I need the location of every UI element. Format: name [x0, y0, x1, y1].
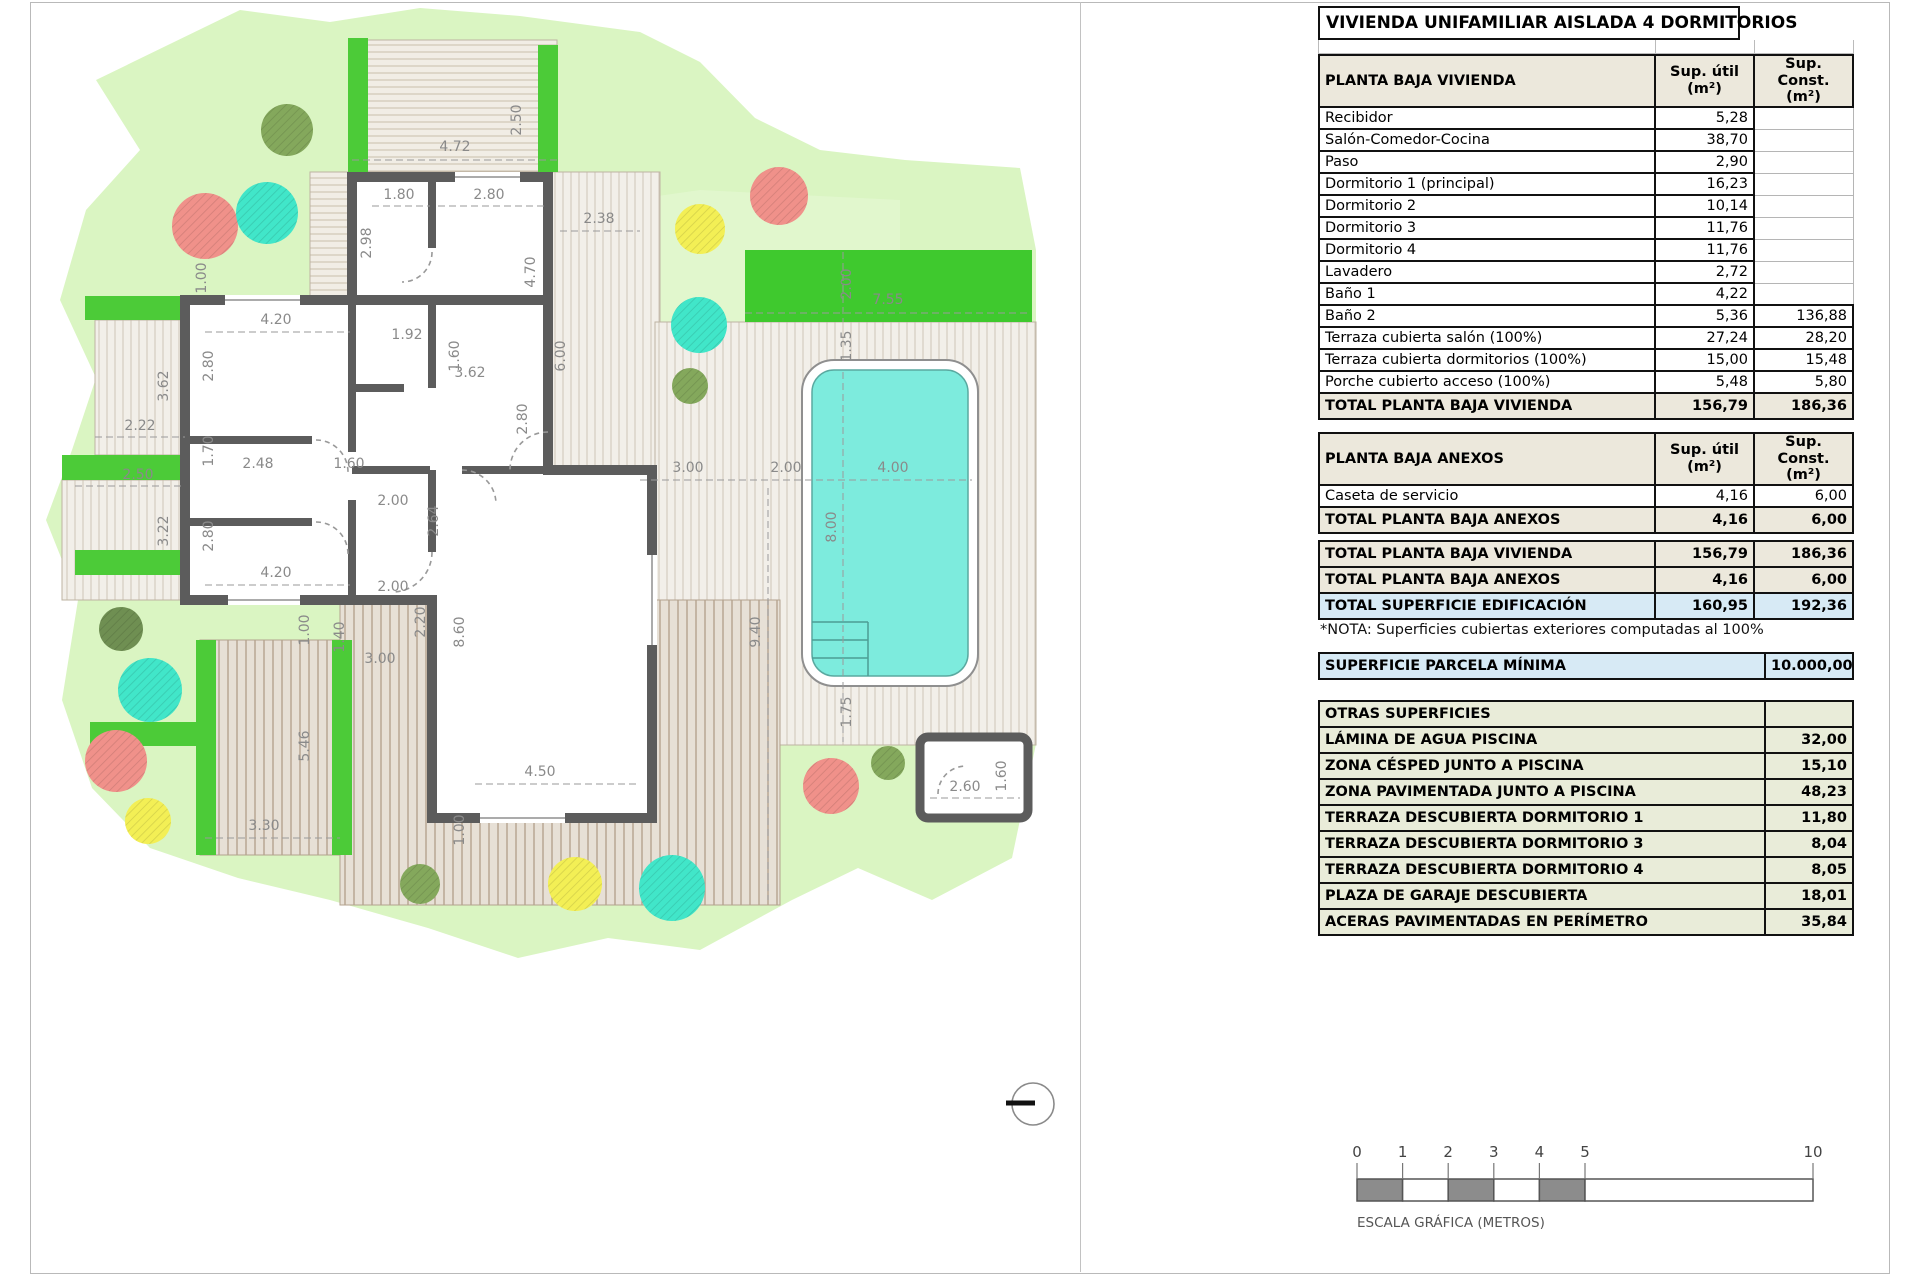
row-label: Recibidor: [1319, 107, 1655, 129]
dimension-label: 1.60: [994, 760, 1010, 791]
total-sup-util: 156,79: [1655, 393, 1754, 419]
row-label: Dormitorio 4: [1319, 239, 1655, 261]
otras-row: PLAZA DE GARAJE DESCUBIERTA18,01: [1319, 883, 1853, 909]
table-resumen: TOTAL PLANTA BAJA VIVIENDA156,79186,36TO…: [1318, 540, 1854, 620]
otras-label: TERRAZA DESCUBIERTA DORMITORIO 3: [1319, 831, 1765, 857]
table-row: Dormitorio 1 (principal)16,23: [1319, 173, 1853, 195]
otras-header: OTRAS SUPERFICIES: [1319, 701, 1765, 727]
dimension-label: 2.80: [201, 520, 217, 551]
row-sup-const: 136,88: [1754, 305, 1853, 327]
tree-hatch: [400, 864, 440, 904]
dimension-label: 5.46: [297, 730, 313, 761]
nota-text: *NOTA: Superficies cubiertas exteriores …: [1320, 622, 1764, 638]
dimension-label: 2.64: [426, 505, 442, 536]
table-header: PLANTA BAJA VIVIENDA: [1319, 55, 1655, 107]
row-label: Terraza cubierta salón (100%): [1319, 327, 1655, 349]
row-label: Dormitorio 3: [1319, 217, 1655, 239]
summary-sup-util: 4,16: [1655, 567, 1754, 593]
hedge-garage-1: [196, 640, 216, 855]
otras-label: LÁMINA DE AGUA PISCINA: [1319, 727, 1765, 753]
dimension-label: 1.00: [297, 614, 313, 645]
tree-hatch: [99, 607, 143, 651]
row-sup-const: [1754, 195, 1853, 217]
otras-header-empty: [1765, 701, 1853, 727]
tree-hatch: [172, 193, 238, 259]
otras-row: LÁMINA DE AGUA PISCINA32,00: [1319, 727, 1853, 753]
dimension-label: 2.22: [124, 418, 155, 434]
dimension-label: 2.50: [122, 467, 153, 483]
row-sup-const: [1754, 129, 1853, 151]
tree-hatch: [236, 182, 298, 244]
dimension-label: 2.80: [473, 187, 504, 203]
dimension-label: 2.00: [839, 268, 855, 299]
dimension-label: 1.92: [391, 327, 422, 343]
row-sup-const: [1754, 173, 1853, 195]
summary-sup-const: 192,36: [1754, 593, 1853, 619]
scale-tick-label: 2: [1443, 1143, 1453, 1161]
table-header: PLANTA BAJA ANEXOS: [1319, 433, 1655, 485]
tree-hatch: [803, 758, 859, 814]
otras-value: 18,01: [1765, 883, 1853, 909]
otras-label: PLAZA DE GARAJE DESCUBIERTA: [1319, 883, 1765, 909]
dimension-label: 2.98: [359, 227, 375, 258]
table-row: Salón-Comedor-Cocina38,70: [1319, 129, 1853, 151]
otras-row: ZONA CÉSPED JUNTO A PISCINA15,10: [1319, 753, 1853, 779]
row-sup-util: 27,24: [1655, 327, 1754, 349]
row-sup-const: 15,48: [1754, 349, 1853, 371]
total-label: TOTAL PLANTA BAJA VIVIENDA: [1319, 393, 1655, 419]
otras-row: TERRAZA DESCUBIERTA DORMITORIO 48,05: [1319, 857, 1853, 883]
row-label: Porche cubierto acceso (100%): [1319, 371, 1655, 393]
dimension-label: 3.62: [156, 370, 172, 401]
row-sup-const: 6,00: [1754, 485, 1853, 507]
dimension-label: 2.80: [201, 350, 217, 381]
row-sup-const: [1754, 151, 1853, 173]
scale-segment: [1585, 1179, 1813, 1201]
tree-hatch: [261, 104, 313, 156]
dimension-label: 2.48: [242, 456, 273, 472]
table-planta-baja-anexos: PLANTA BAJA ANEXOS Sup. útil (m²) Sup. C…: [1318, 432, 1854, 534]
table-row: Baño 14,22: [1319, 283, 1853, 305]
otras-row: TERRAZA DESCUBIERTA DORMITORIO 111,80: [1319, 805, 1853, 831]
dimension-label: 4.20: [260, 565, 291, 581]
scale-caption: ESCALA GRÁFICA (METROS): [1357, 1214, 1545, 1231]
row-label: Dormitorio 1 (principal): [1319, 173, 1655, 195]
summary-sup-const: 6,00: [1754, 567, 1853, 593]
tree-hatch: [750, 167, 808, 225]
dimension-label: 3.30: [248, 818, 279, 834]
dimension-label: 2.00: [770, 460, 801, 476]
row-sup-util: 11,76: [1655, 239, 1754, 261]
summary-label: TOTAL PLANTA BAJA VIVIENDA: [1319, 541, 1655, 567]
dimension-label: 4.20: [260, 312, 291, 328]
table-row: Caseta de servicio4,166,00: [1319, 485, 1853, 507]
table-otras-superficies: OTRAS SUPERFICIES LÁMINA DE AGUA PISCINA…: [1318, 700, 1854, 936]
dimension-label: 1.35: [839, 330, 855, 361]
row-label: Terraza cubierta dormitorios (100%): [1319, 349, 1655, 371]
table-row: Paso2,90: [1319, 151, 1853, 173]
parcela-value: 10.000,00: [1765, 653, 1853, 679]
scale-segment: [1539, 1179, 1585, 1201]
otras-label: TERRAZA DESCUBIERTA DORMITORIO 1: [1319, 805, 1765, 831]
dimension-label: 1.00: [452, 814, 468, 845]
summary-row: TOTAL PLANTA BAJA ANEXOS4,166,00: [1319, 567, 1853, 593]
summary-label: TOTAL PLANTA BAJA ANEXOS: [1319, 567, 1655, 593]
row-label: Baño 2: [1319, 305, 1655, 327]
otras-label: ACERAS PAVIMENTADAS EN PERÍMETRO: [1319, 909, 1765, 935]
otras-row: TERRAZA DESCUBIERTA DORMITORIO 38,04: [1319, 831, 1853, 857]
dimension-label: 3.62: [454, 365, 485, 381]
tree-hatch: [871, 746, 905, 780]
col-sup-util: Sup. útil (m²): [1655, 433, 1754, 485]
spacer-row: [1318, 40, 1854, 54]
scale-tick-label: 5: [1580, 1143, 1590, 1161]
row-sup-util: 11,76: [1655, 217, 1754, 239]
total-sup-const: 186,36: [1754, 393, 1853, 419]
dimension-label: 1.00: [194, 262, 210, 293]
row-sup-const: [1754, 283, 1853, 305]
otras-value: 35,84: [1765, 909, 1853, 935]
row-sup-const: [1754, 217, 1853, 239]
row-label: Lavadero: [1319, 261, 1655, 283]
row-label: Salón-Comedor-Cocina: [1319, 129, 1655, 151]
dimension-label: 2.80: [515, 403, 531, 434]
dimension-label: 7.55: [872, 292, 903, 308]
summary-row: TOTAL SUPERFICIE EDIFICACIÓN160,95192,36: [1319, 593, 1853, 619]
dimension-label: 8.00: [824, 511, 840, 542]
otras-value: 32,00: [1765, 727, 1853, 753]
row-label: Dormitorio 2: [1319, 195, 1655, 217]
hedge-pool: [745, 250, 1032, 322]
table-row: Terraza cubierta salón (100%)27,2428,20: [1319, 327, 1853, 349]
table-row: Recibidor5,28: [1319, 107, 1853, 129]
row-sup-const: 5,80: [1754, 371, 1853, 393]
row-sup-util: 4,22: [1655, 283, 1754, 305]
scale-tick-label: 10: [1803, 1143, 1822, 1161]
tree-hatch: [85, 730, 147, 792]
dimension-label: 3.00: [364, 651, 395, 667]
dimension-label: 2.60: [949, 779, 980, 795]
total-sup-util: 4,16: [1655, 507, 1754, 533]
table-total-row: TOTAL PLANTA BAJA ANEXOS4,166,00: [1319, 507, 1853, 533]
hedge-top-2: [538, 45, 558, 172]
otras-value: 48,23: [1765, 779, 1853, 805]
dimension-label: 2.50: [509, 104, 525, 135]
summary-sup-const: 186,36: [1754, 541, 1853, 567]
otras-label: TERRAZA DESCUBIERTA DORMITORIO 4: [1319, 857, 1765, 883]
tree-hatch: [548, 857, 602, 911]
dimension-label: 2.38: [583, 211, 614, 227]
row-sup-const: [1754, 107, 1853, 129]
row-sup-util: 2,90: [1655, 151, 1754, 173]
col-sup-const: Sup. Const. (m²): [1754, 433, 1853, 485]
dimension-label: 9.40: [748, 616, 764, 647]
row-sup-util: 15,00: [1655, 349, 1754, 371]
dimension-label: 1.75: [839, 696, 855, 727]
tree-hatch: [675, 204, 725, 254]
dimension-label: 4.70: [523, 256, 539, 287]
row-label: Baño 1: [1319, 283, 1655, 305]
col-sup-util: Sup. útil (m²): [1655, 55, 1754, 107]
otras-value: 15,10: [1765, 753, 1853, 779]
dimension-label: 6.00: [553, 340, 569, 371]
table-row: Terraza cubierta dormitorios (100%)15,00…: [1319, 349, 1853, 371]
benchmark-marker: [1006, 1083, 1054, 1125]
sheet-divider: [1080, 2, 1081, 1272]
summary-sup-util: 160,95: [1655, 593, 1754, 619]
otras-value: 8,05: [1765, 857, 1853, 883]
tree-hatch: [639, 855, 705, 921]
scale-tick-label: 3: [1489, 1143, 1499, 1161]
tree-hatch: [118, 658, 182, 722]
table-total-row: TOTAL PLANTA BAJA VIVIENDA156,79186,36: [1319, 393, 1853, 419]
row-sup-const: [1754, 261, 1853, 283]
otras-label: ZONA PAVIMENTADA JUNTO A PISCINA: [1319, 779, 1765, 805]
table-parcela-minima: SUPERFICIE PARCELA MÍNIMA 10.000,00: [1318, 652, 1854, 680]
dimension-label: 2.00: [377, 493, 408, 509]
hedge-top-1: [348, 38, 368, 172]
dimension-label: 1.80: [383, 187, 414, 203]
dimension-label: 3.00: [672, 460, 703, 476]
page-title: VIVIENDA UNIFAMILIAR AISLADA 4 DORMITORI…: [1318, 6, 1740, 40]
otras-label: ZONA CÉSPED JUNTO A PISCINA: [1319, 753, 1765, 779]
dimension-label: 4.72: [439, 139, 470, 155]
dimension-label: 1.70: [201, 435, 217, 466]
tree-hatch: [672, 368, 708, 404]
row-sup-const: [1754, 239, 1853, 261]
row-label: Paso: [1319, 151, 1655, 173]
table-row: Dormitorio 411,76: [1319, 239, 1853, 261]
row-sup-util: 5,48: [1655, 371, 1754, 393]
row-sup-util: 4,16: [1655, 485, 1754, 507]
row-sup-util: 2,72: [1655, 261, 1754, 283]
col-sup-const: Sup. Const. (m²): [1754, 55, 1853, 107]
dimension-label: 4.00: [877, 460, 908, 476]
scale-segment: [1448, 1179, 1494, 1201]
dimension-label: 8.60: [452, 616, 468, 647]
otras-value: 8,04: [1765, 831, 1853, 857]
row-sup-util: 38,70: [1655, 129, 1754, 151]
table-row: Porche cubierto acceso (100%)5,485,80: [1319, 371, 1853, 393]
dimension-label: 2.20: [413, 606, 429, 637]
row-sup-util: 5,36: [1655, 305, 1754, 327]
row-sup-const: 28,20: [1754, 327, 1853, 349]
table-planta-baja-vivienda: PLANTA BAJA VIVIENDA Sup. útil (m²) Sup.…: [1318, 54, 1854, 420]
scale-segment: [1403, 1179, 1449, 1201]
floor-plan: 2.504.721.802.802.382.984.701.004.201.92…: [0, 0, 1080, 1280]
tree-hatch: [671, 297, 727, 353]
parcela-label: SUPERFICIE PARCELA MÍNIMA: [1319, 653, 1765, 679]
scale-segment: [1357, 1179, 1403, 1201]
dimension-label: 1.40: [332, 621, 348, 652]
otras-row: ZONA PAVIMENTADA JUNTO A PISCINA48,23: [1319, 779, 1853, 805]
otras-value: 11,80: [1765, 805, 1853, 831]
scale-tick-label: 4: [1535, 1143, 1545, 1161]
summary-row: TOTAL PLANTA BAJA VIVIENDA156,79186,36: [1319, 541, 1853, 567]
table-row: Lavadero2,72: [1319, 261, 1853, 283]
scale-tick-label: 1: [1398, 1143, 1408, 1161]
total-sup-const: 6,00: [1754, 507, 1853, 533]
summary-label: TOTAL SUPERFICIE EDIFICACIÓN: [1319, 593, 1655, 619]
table-row: Dormitorio 210,14: [1319, 195, 1853, 217]
row-sup-util: 5,28: [1655, 107, 1754, 129]
dimension-label: 2.00: [377, 579, 408, 595]
row-label: Caseta de servicio: [1319, 485, 1655, 507]
scale-tick-label: 0: [1352, 1143, 1362, 1161]
dimension-label: 4.50: [524, 764, 555, 780]
caseta-servicio: [920, 737, 1028, 818]
row-sup-util: 16,23: [1655, 173, 1754, 195]
table-row: Dormitorio 311,76: [1319, 217, 1853, 239]
hedge-garage-2: [332, 640, 352, 855]
dimension-label: 1.60: [333, 456, 364, 472]
row-sup-util: 10,14: [1655, 195, 1754, 217]
table-row: Baño 25,36136,88: [1319, 305, 1853, 327]
otras-row: ACERAS PAVIMENTADAS EN PERÍMETRO35,84: [1319, 909, 1853, 935]
total-label: TOTAL PLANTA BAJA ANEXOS: [1319, 507, 1655, 533]
scale-bar: 01234510ESCALA GRÁFICA (METROS): [1330, 1135, 1850, 1245]
summary-sup-util: 156,79: [1655, 541, 1754, 567]
tree-hatch: [125, 798, 171, 844]
dimension-label: 3.22: [156, 515, 172, 546]
scale-segment: [1494, 1179, 1540, 1201]
